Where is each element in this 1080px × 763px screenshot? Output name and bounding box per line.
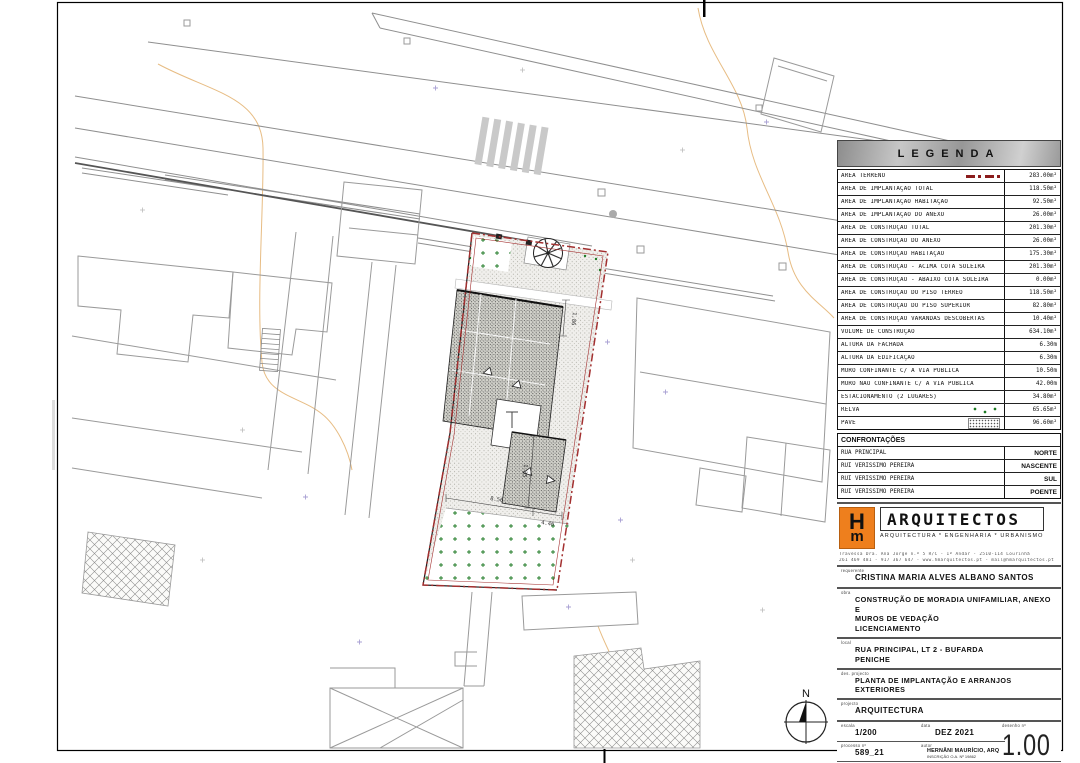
firm-name: ARQUITECTOS: [880, 507, 1044, 531]
legend-row-label: ÁREA DE CONSTRUÇÃO VARANDAS DESCOBERTAS: [838, 316, 1004, 322]
confrontacao-row: RUA PRINCIPALNORTE: [838, 446, 1060, 459]
legend-row-label: ÁREA DE IMPLANTAÇÃO HABITAÇÃO: [838, 199, 1004, 205]
legend-row-label: MURO NÃO CONFINANTE C/ A VIA PÚBLICA: [838, 381, 1004, 387]
firm-address-2: 261 469 481 - 917 367 647 - www.hmarquit…: [839, 558, 1059, 564]
legend-row-value: 283.00m²: [1004, 170, 1060, 182]
obra-section: obra CONSTRUÇÃO DE MORADIA UNIFAMILIAR, …: [837, 587, 1061, 637]
legend-row: ÁREA DE CONSTRUÇÃO DO ANEXO26.00m²: [838, 234, 1060, 247]
fold-mark-bottom: [604, 749, 606, 763]
drawing-sheet: 8.56 4.46 1.86 1.35 N LEGENDA ÁREA TERRE…: [0, 0, 1080, 763]
legend-row-value: 201.30m²: [1004, 261, 1060, 273]
legend-row-label: PAVÊ: [838, 420, 968, 426]
legend-table: ÁREA TERRENO283.00m²ÁREA DE IMPLANTAÇÃO …: [837, 169, 1061, 430]
confrontacoes-title: CONFRONTAÇÕES: [838, 434, 1060, 446]
site-address-1: RUA PRINCIPAL, LT 2 - BUFARDA: [841, 645, 1057, 655]
drawing-title: PLANTA DE IMPLANTAÇÃO E ARRANJOS EXTERIO…: [841, 676, 1057, 695]
legend-row-value: 92.50m²: [1004, 196, 1060, 208]
discipline: ARQUITECTURA: [841, 706, 1057, 717]
legend-row-value: 118.50m²: [1004, 183, 1060, 195]
manhole: [609, 210, 617, 218]
legend-row-value: 96.60m²: [1004, 417, 1060, 429]
legend-row-value: 0.00m²: [1004, 274, 1060, 286]
drawing-title-section: des. projecto PLANTA DE IMPLANTAÇÃO E AR…: [837, 668, 1061, 698]
confrontacoes-table: CONFRONTAÇÕES RUA PRINCIPALNORTERUI VERI…: [837, 433, 1061, 499]
confrontacao-row: RUI VERISSIMO PEREIRAPOENTE: [838, 485, 1060, 498]
fold-mark-top: [703, 0, 706, 17]
legend-row-label: ÁREA DE CONSTRUÇÃO DO ANEXO: [838, 238, 1004, 244]
firm-block: H m ARQUITECTOS ARQUITECTURA * ENGENHARI…: [837, 502, 1061, 565]
dim-label: 1.35: [521, 464, 528, 478]
legend-row: ÁREA DE CONSTRUÇÃO - ABAIXO COTA SOLEIRA…: [838, 273, 1060, 286]
legend-row: MURO CONFINANTE C/ A VIA PÚBLICA10.50m: [838, 364, 1060, 377]
requerente-section: requerente CRISTINA MARIA ALVES ALBANO S…: [837, 565, 1061, 587]
legend-row-label: MURO CONFINANTE C/ A VIA PÚBLICA: [838, 368, 1004, 374]
legend-row: VOLUME DE CONSTRUÇÃO634.10m³: [838, 325, 1060, 338]
confrontacao-row: RUI VERISSIMO PEREIRASUL: [838, 472, 1060, 485]
legend-row-value: 201.30m²: [1004, 222, 1060, 234]
legend-row-label: ALTURA DA EDIFICAÇÃO: [838, 355, 1004, 361]
confrontacao-direction: SUL: [1004, 473, 1060, 485]
local-section: local RUA PRINCIPAL, LT 2 - BUFARDA PENI…: [837, 637, 1061, 668]
legend-row: ÁREA DE CONSTRUÇÃO DO PISO SUPERIOR82.80…: [838, 299, 1060, 312]
legend-row-label: ÁREA DE CONSTRUÇÃO - ABAIXO COTA SOLEIRA: [838, 277, 1004, 283]
legend-row-value: 10.50m: [1004, 365, 1060, 377]
legend-row: ÁREA DE IMPLANTAÇÃO HABITAÇÃO92.50m²: [838, 195, 1060, 208]
legend-row-label: ÁREA DE CONSTRUÇÃO DO PISO TÉRREO: [838, 290, 1004, 296]
legend-row-label: ÁREA DE IMPLANTAÇÃO TOTAL: [838, 186, 1004, 192]
title-block: LEGENDA ÁREA TERRENO283.00m²ÁREA DE IMPL…: [837, 140, 1061, 763]
scale-value: 1/200: [841, 728, 913, 739]
legend-row: ALTURA DA EDIFICAÇÃO6.30m: [838, 351, 1060, 364]
site-address-2: PENICHE: [841, 655, 1057, 665]
legend-row: ÁREA DE CONSTRUÇÃO VARANDAS DESCOBERTAS1…: [838, 312, 1060, 325]
legend-row-value: 10.40m²: [1004, 313, 1060, 325]
legend-row: ESTACIONAMENTO (2 LUGARES)34.80m²: [838, 390, 1060, 403]
legend-row: MURO NÃO CONFINANTE C/ A VIA PÚBLICA42.0…: [838, 377, 1060, 390]
client-name: CRISTINA MARIA ALVES ALBANO SANTOS: [841, 573, 1057, 584]
legend-row: ÁREA TERRENO283.00m²: [838, 170, 1060, 182]
grass-symbol-icon: [970, 406, 1000, 415]
legend-row-value: 42.00m: [1004, 378, 1060, 390]
confrontacao-name: RUA PRINCIPAL: [838, 450, 1004, 456]
legend-row-label: ÁREA DE CONSTRUÇÃO TOTAL: [838, 225, 1004, 231]
confrontacao-direction: NORTE: [1004, 447, 1060, 459]
legend-row-label: ÁREA TERRENO: [838, 173, 966, 179]
legend-row-label: ÁREA DE IMPLANTAÇÃO DO ANEXO: [838, 212, 1004, 218]
legend-row-value: 6.30m: [1004, 352, 1060, 364]
north-label: N: [802, 688, 810, 700]
confrontacao-name: RUI VERISSIMO PEREIRA: [838, 463, 1004, 469]
legend-row: ÁREA DE CONSTRUÇÃO - ACIMA COTA SOLEIRA2…: [838, 260, 1060, 273]
legend-row-value: 175.30m²: [1004, 248, 1060, 260]
confrontacao-direction: POENTE: [1004, 486, 1060, 498]
legend-row-value: 34.80m²: [1004, 391, 1060, 403]
legend-row-value: 26.00m²: [1004, 235, 1060, 247]
legend-row-label: RELVA: [838, 407, 970, 413]
project-desc-2: MUROS DE VEDAÇÃO: [841, 614, 1057, 624]
confrontacao-direction: NASCENTE: [1004, 460, 1060, 472]
legend-row: ÁREA DE CONSTRUÇÃO TOTAL201.30m²: [838, 221, 1060, 234]
sheet-number-cell: desenho nº 1.00: [999, 722, 1061, 761]
legend-row-value: 6.30m: [1004, 339, 1060, 351]
project-desc-1: CONSTRUÇÃO DE MORADIA UNIFAMILIAR, ANEXO…: [841, 595, 1057, 615]
projecto-section: projecto ARQUITECTURA: [837, 698, 1061, 720]
confrontacao-row: RUI VERISSIMO PEREIRANASCENTE: [838, 459, 1060, 472]
legend-row-value: 82.80m²: [1004, 300, 1060, 312]
legend-row-label: ALTURA DA FACHADA: [838, 342, 1004, 348]
terrain-symbol-icon: [966, 175, 1000, 178]
legend-row-label: ÁREA DE CONSTRUÇÃO DO PISO SUPERIOR: [838, 303, 1004, 309]
lawn-strip: [470, 236, 512, 272]
pave-symbol-icon: [968, 418, 1000, 429]
confrontacao-name: RUI VERISSIMO PEREIRA: [838, 476, 1004, 482]
legend-row-label: ÁREA DE CONSTRUÇÃO - ACIMA COTA SOLEIRA: [838, 264, 1004, 270]
edge-note: [52, 400, 55, 470]
legend-row: ÁREA DE IMPLANTAÇÃO TOTAL118.50m²: [838, 182, 1060, 195]
legend-row: ÁREA DE IMPLANTAÇÃO DO ANEXO26.00m²: [838, 208, 1060, 221]
legend-row: ÁREA DE CONSTRUÇÃO DO PISO TÉRREO118.50m…: [838, 286, 1060, 299]
legend-row-label: ESTACIONAMENTO (2 LUGARES): [838, 394, 1004, 400]
legend-row: PAVÊ96.60m²: [838, 416, 1060, 429]
annex-footprint: [502, 432, 566, 512]
legend-row-label: ÁREA DE CONSTRUÇÃO HABITAÇÃO: [838, 251, 1004, 257]
process-number: 589_21: [841, 748, 913, 759]
sheet-number: 1.00: [1002, 731, 1046, 761]
legend-title: LEGENDA: [837, 140, 1061, 167]
legend-row-value: 26.00m²: [1004, 209, 1060, 221]
legend-row-value: 65.65m²: [1004, 404, 1060, 416]
legend-row-label: VOLUME DE CONSTRUÇÃO: [838, 329, 1004, 335]
legend-row: RELVA65.65m²: [838, 403, 1060, 416]
firm-logo: H m: [839, 507, 875, 549]
legend-row-value: 118.50m²: [1004, 287, 1060, 299]
project-desc-3: LICENCIAMENTO: [841, 624, 1057, 634]
firm-tagline: ARQUITECTURA * ENGENHARIA * URBANISMO: [880, 533, 1044, 539]
legend-row: ÁREA DE CONSTRUÇÃO HABITAÇÃO175.30m²: [838, 247, 1060, 260]
scale-date-number: escala 1/200 data DEZ 2021 processo nº 5…: [837, 720, 1061, 761]
confrontacao-name: RUI VERISSIMO PEREIRA: [838, 489, 1004, 495]
legend-row: ALTURA DA FACHADA6.30m: [838, 338, 1060, 351]
legend-row-value: 634.10m³: [1004, 326, 1060, 338]
